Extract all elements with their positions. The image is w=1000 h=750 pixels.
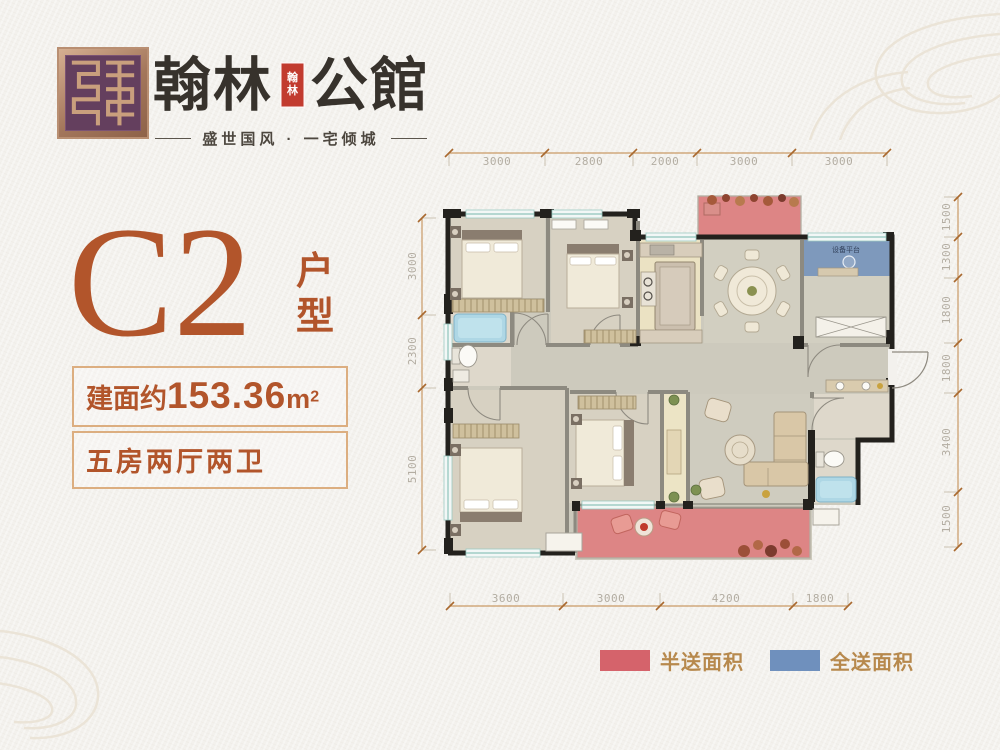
floorplan-flyer: { "brand": { "seal_icon": "maze-seal-ico… xyxy=(0,0,1000,750)
layout-banner: 五房两厅两卫 xyxy=(72,431,348,489)
dim-label: 3000 xyxy=(406,252,419,281)
tagline-dash-right xyxy=(391,138,427,139)
area-unit-sup: 2 xyxy=(310,389,319,406)
legend-label: 半送面积 xyxy=(660,646,744,675)
brand-name-right: 公館 xyxy=(310,56,430,114)
dim-label: 2300 xyxy=(406,337,419,366)
unit-type-char-2: 型 xyxy=(296,295,334,340)
dim-label: 1800 xyxy=(940,296,953,325)
unit-type-label: 户 型 xyxy=(296,250,334,340)
entrance-opening xyxy=(888,349,897,385)
cloud-swirl-bottom-left-icon xyxy=(0,590,170,750)
dim-label: 1800 xyxy=(806,592,835,605)
dim-label: 2000 xyxy=(651,155,680,168)
full-gift-swatch xyxy=(770,650,820,671)
floor-plan: 3000 2800 2000 3000 3000 3600 3000 4200 … xyxy=(390,140,990,640)
dim-label: 4200 xyxy=(712,592,741,605)
dim-label: 3000 xyxy=(483,155,512,168)
ac-platform xyxy=(546,533,582,551)
dimension-right: 1500 1300 1800 1800 3400 1500 xyxy=(940,193,962,551)
legend-label: 全送面积 xyxy=(830,646,914,675)
brand-mini-seal: 翰 林 xyxy=(280,62,305,108)
brand-seal-icon xyxy=(57,47,149,139)
dim-label: 5100 xyxy=(406,455,419,484)
dimension-bottom: 3600 3000 4200 1800 xyxy=(446,592,852,610)
mini-seal-char-top: 翰 xyxy=(287,73,298,84)
dim-label: 3600 xyxy=(492,592,521,605)
window xyxy=(552,210,602,218)
dim-label: 1300 xyxy=(940,243,953,272)
ac-platform xyxy=(813,509,839,525)
entrance-door-arc xyxy=(892,352,928,388)
brand-name-left: 翰林 xyxy=(153,56,273,114)
area-banner: 建面约153.36m2 xyxy=(72,366,348,427)
tagline-text: 盛世国风 · 一宅倾城 xyxy=(191,128,391,149)
balcony-top-half-gift xyxy=(698,194,801,237)
dim-label: 1500 xyxy=(940,203,953,232)
gift-area-legend: 半送面积 全送面积 xyxy=(600,646,914,675)
unit-type-char-1: 户 xyxy=(296,250,334,295)
dim-label: 1800 xyxy=(940,354,953,383)
window xyxy=(646,233,696,241)
window xyxy=(466,549,540,557)
unit-code: C2 xyxy=(68,218,252,348)
brand-tagline: 盛世国风 · 一宅倾城 xyxy=(155,128,427,149)
balcony-bottom-half-gift xyxy=(577,507,810,558)
equipment-platform-label: 设备平台 xyxy=(832,245,860,254)
window xyxy=(444,456,452,520)
dimension-top: 3000 2800 2000 3000 3000 xyxy=(445,149,891,168)
spec-banners: 建面约153.36m2 五房两厅两卫 xyxy=(72,366,348,493)
area-unit: m xyxy=(286,384,310,414)
room-bath-hall xyxy=(814,394,890,438)
window xyxy=(466,210,534,218)
area-value: 153.36 xyxy=(167,375,286,416)
tagline-dash-left xyxy=(155,138,191,139)
cloud-swirl-top-right-icon xyxy=(780,0,1000,140)
area-prefix: 建面约 xyxy=(86,384,167,414)
window xyxy=(808,233,886,241)
legend-item-full-gift: 全送面积 xyxy=(770,646,914,675)
half-gift-swatch xyxy=(600,650,650,671)
dim-label: 3000 xyxy=(825,155,854,168)
window xyxy=(582,501,654,509)
mini-seal-char-bottom: 林 xyxy=(287,86,298,97)
dimension-left: 3000 2300 5100 xyxy=(406,214,436,554)
dim-label: 3000 xyxy=(730,155,759,168)
dim-label: 3400 xyxy=(940,428,953,457)
window xyxy=(444,324,452,360)
dim-label: 3000 xyxy=(597,592,626,605)
dim-label: 2800 xyxy=(575,155,604,168)
legend-item-half-gift: 半送面积 xyxy=(600,646,744,675)
dim-label: 1500 xyxy=(940,505,953,534)
